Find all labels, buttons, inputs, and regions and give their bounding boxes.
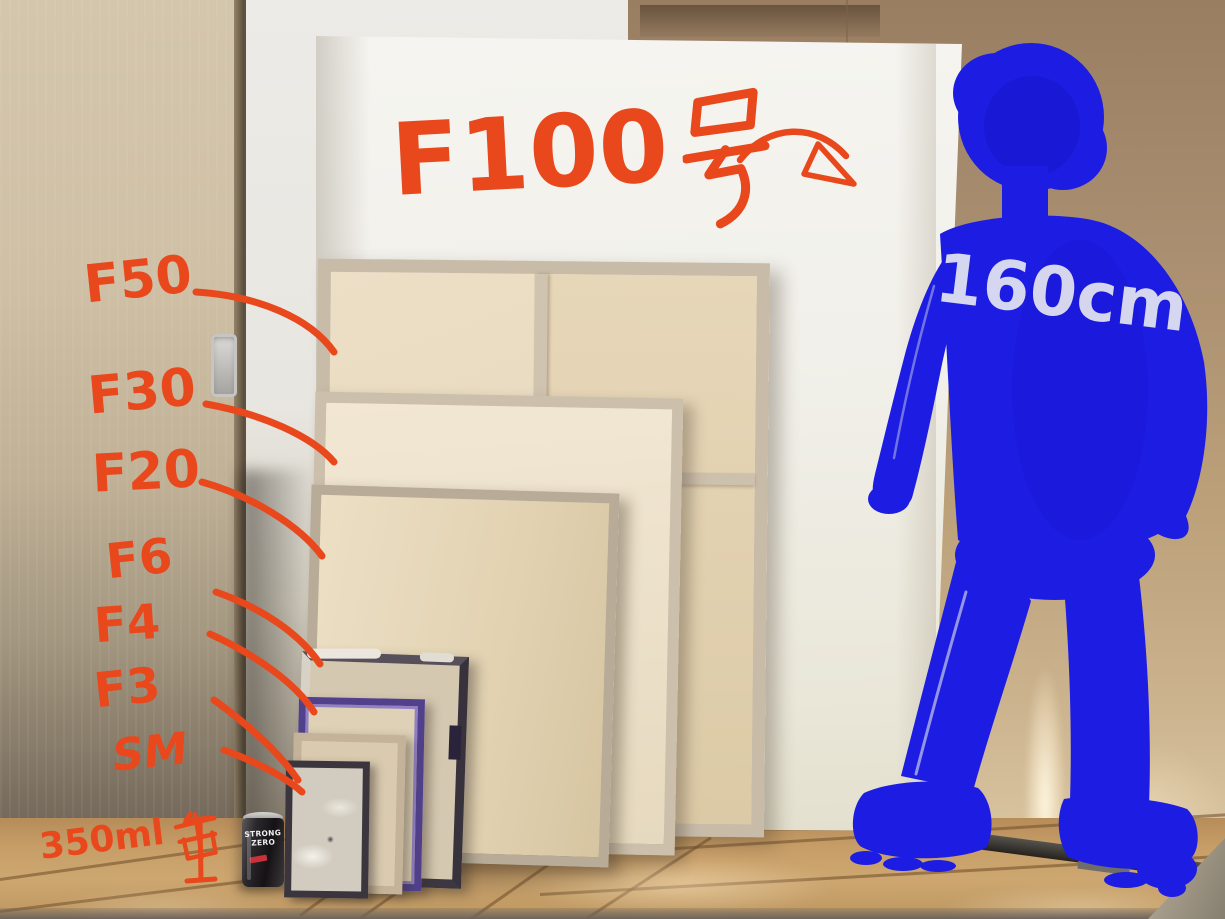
arrow-head <box>804 144 854 184</box>
label-f4: F4 <box>92 594 162 654</box>
label-f100-latin: F100 <box>388 88 671 219</box>
connector-f4 <box>210 634 314 712</box>
person-neck <box>1002 166 1048 222</box>
person-left-foot <box>853 782 992 859</box>
connector-f30 <box>206 404 334 462</box>
room-photo: STRONG ZERO <box>0 0 1225 919</box>
connector-f3 <box>214 700 298 780</box>
person-left-hand <box>868 484 910 514</box>
connector-f50 <box>196 292 334 352</box>
label-f30: F30 <box>86 357 199 426</box>
connector-f6 <box>216 592 320 664</box>
person-right-leg <box>1065 560 1150 806</box>
label-f3: F3 <box>91 657 163 720</box>
connector-f20 <box>202 482 322 556</box>
kanji-gou-glyph <box>679 84 777 237</box>
label-f6: F6 <box>103 528 175 591</box>
person-silhouette <box>850 43 1207 897</box>
label-f50: F50 <box>81 245 195 316</box>
label-sm: SM <box>110 723 189 783</box>
label-f100: F100 <box>388 82 776 252</box>
label-f20: F20 <box>91 439 202 505</box>
kanji-kan-glyph <box>172 807 222 864</box>
